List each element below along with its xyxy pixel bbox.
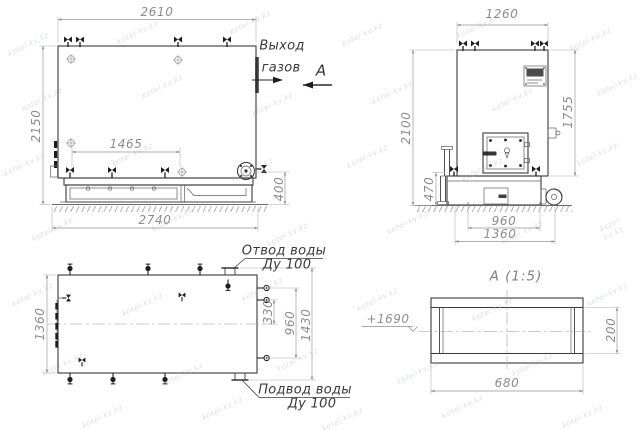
valve-icon [108,167,116,178]
dim-side-width: 2610 [141,6,174,18]
side-fitting [548,128,556,138]
valve-icon [471,41,479,52]
dim-front-width: 1260 [486,8,519,20]
water-inlet-label: Подвод воды [258,384,352,397]
valve-icon [174,37,182,48]
valve-icon [110,373,115,384]
boiler-body-side [58,46,256,178]
valve-icon [225,280,230,291]
valve-icon [531,41,539,52]
flange-icon [238,163,255,180]
ground-hatch [415,206,572,212]
dim-top-nozzle-offset: 330 [262,300,274,325]
valve-icon [162,373,167,384]
dim-front-base-inner: 960 [492,215,517,227]
valve-icon [540,41,548,52]
section-title: А (1:5) [490,270,543,284]
water-inlet-dn: Ду 100 [288,398,337,411]
valve-icon [62,295,71,302]
furnace-door [483,133,530,173]
water-outlet-dn: Ду 100 [263,259,312,272]
fan-icon [541,189,562,205]
valve-icon [161,167,169,178]
dim-front-body-height: 1755 [562,96,574,129]
dim-side-height: 2150 [30,110,42,143]
dim-top-flange-span: 1430 [300,309,312,342]
valve-icon [223,37,231,48]
gas-outlet-label-line2: газов [262,62,301,75]
grate-band [64,178,253,185]
nozzle-icon [257,355,269,360]
water-inlet-flange [232,373,249,380]
valve-icon [76,37,84,48]
nozzle-icon [257,285,269,290]
valve-icon [67,373,72,384]
dim-side-grate: 1465 [110,138,143,150]
dim-side-length: 2740 [139,214,172,226]
base-frame-front [447,176,541,205]
valve-icon [79,357,86,366]
water-outlet-label: Отвод воды [242,245,326,258]
dim-side-base-height: 400 [273,177,285,202]
valve-icon [145,264,150,275]
elevation-value: +1690 [366,313,409,325]
dim-front-height: 2100 [400,112,412,145]
valve-icon [67,264,72,275]
valve-icon [459,41,467,52]
dim-front-base-height: 470 [423,177,435,202]
valve-icon [66,167,74,178]
water-outlet-flange [222,268,239,275]
gas-outlet-duct [255,57,259,93]
dim-section-width: 680 [495,377,520,389]
valve-icon [179,292,186,301]
gas-outlet-label-line1: Выход [259,40,304,53]
base-frame-side [66,185,252,202]
ground-hatch [52,206,268,212]
valve-icon [197,264,202,275]
dim-section-height: 200 [605,318,617,343]
valve-icon [64,37,72,48]
valve-icon [532,166,540,177]
nameplate [524,66,546,86]
dim-front-base-outer: 1360 [484,228,517,240]
elevation-mark [362,327,418,332]
door-handle [483,152,497,156]
dim-top-nozzle-span: 960 [284,311,296,336]
dim-top-width: 1360 [34,308,46,341]
section-a-drawing [362,290,621,395]
section-letter: А [316,64,326,79]
drawing-sheet: 2610 2150 1465 2740 400 Выход газов А 12… [0,0,644,430]
